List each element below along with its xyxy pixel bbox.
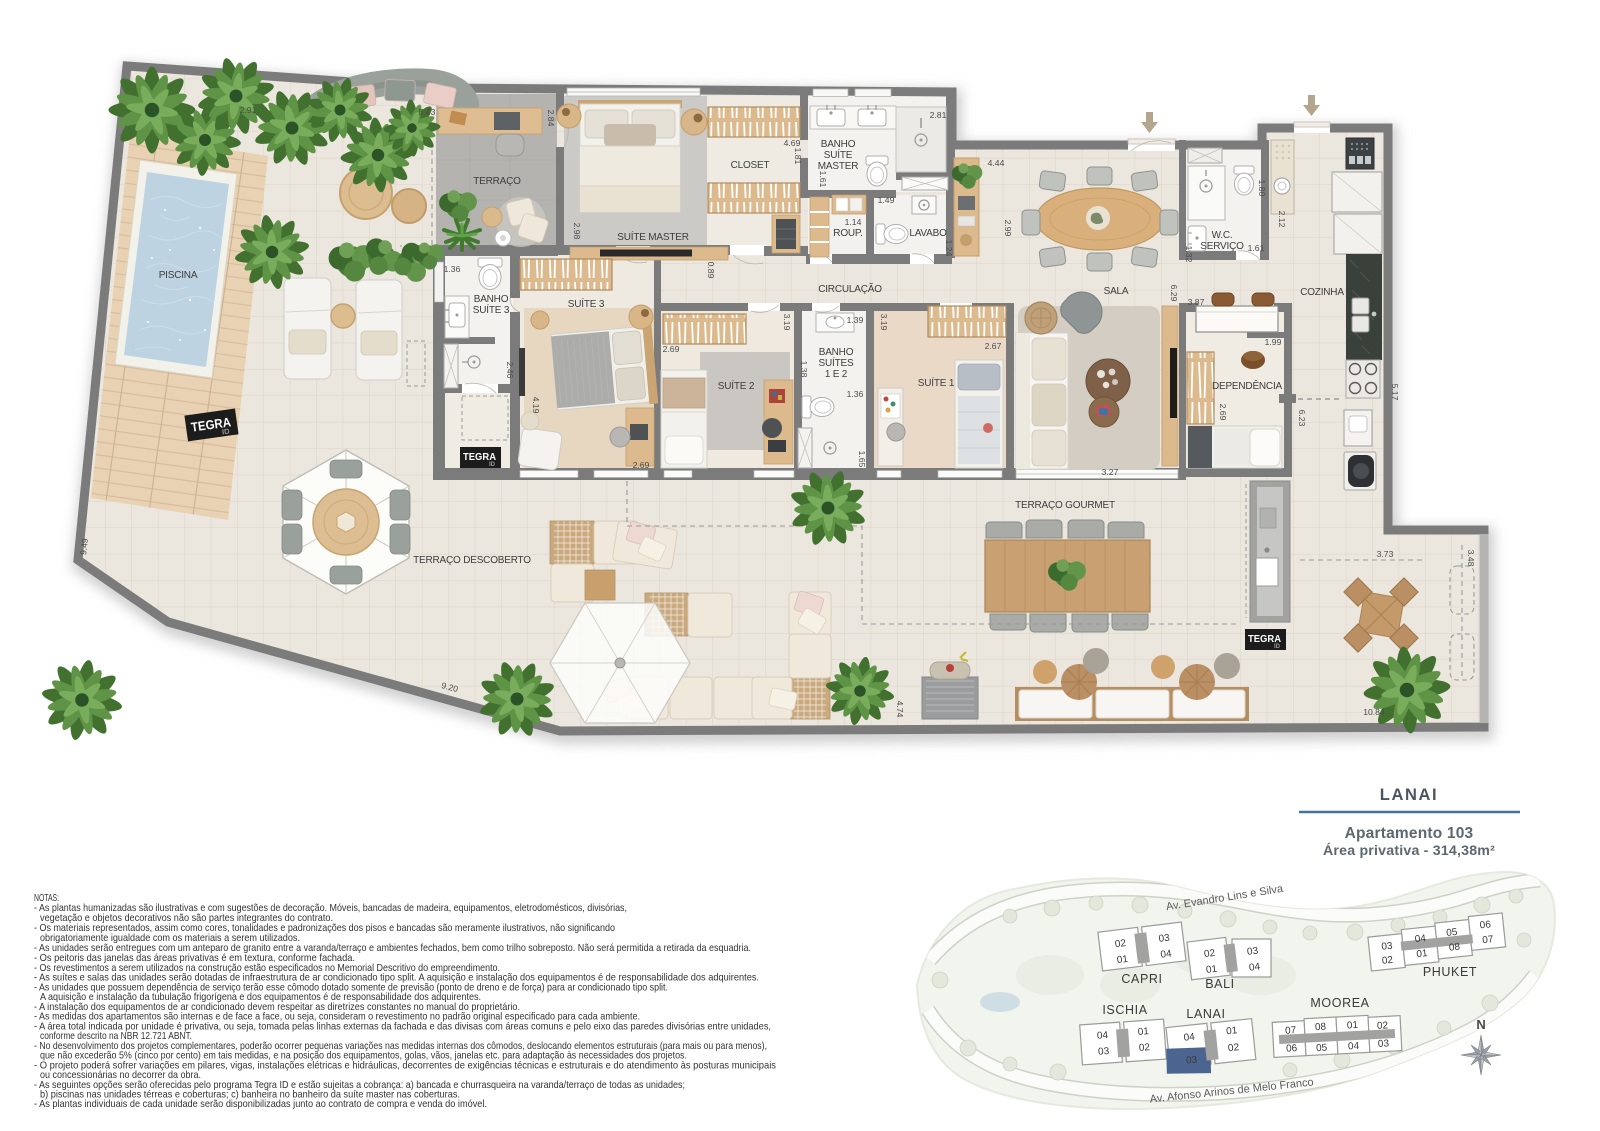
svg-text:01: 01 (1347, 1020, 1359, 1032)
svg-text:DEPENDÊNCIA: DEPENDÊNCIA (1212, 379, 1283, 392)
svg-text:1.61: 1.61 (818, 171, 828, 188)
svg-text:1.99: 1.99 (1265, 337, 1282, 347)
svg-text:2.69: 2.69 (663, 344, 680, 354)
svg-text:03: 03 (1246, 946, 1259, 958)
svg-text:1.65: 1.65 (857, 451, 867, 468)
svg-text:2.46: 2.46 (505, 362, 515, 379)
svg-text:LAVABO: LAVABO (909, 228, 947, 239)
svg-text:07: 07 (1482, 934, 1495, 946)
svg-text:4.69: 4.69 (784, 138, 801, 148)
svg-text:02: 02 (1377, 1020, 1389, 1032)
svg-text:3.73: 3.73 (1377, 549, 1394, 559)
svg-text:3.27: 3.27 (1102, 467, 1119, 477)
svg-text:2.12: 2.12 (1277, 211, 1287, 228)
svg-text:02: 02 (1114, 938, 1127, 950)
svg-text:01: 01 (1416, 948, 1429, 960)
svg-text:LANAI: LANAI (1186, 1007, 1225, 1021)
svg-text:05: 05 (1316, 1043, 1328, 1055)
svg-text:1.14: 1.14 (845, 217, 862, 227)
svg-text:2.69: 2.69 (1218, 404, 1228, 421)
svg-text:03: 03 (1381, 941, 1394, 953)
svg-text:4.19: 4.19 (531, 397, 541, 414)
svg-text:5.17: 5.17 (1390, 384, 1400, 401)
svg-text:4.44: 4.44 (988, 158, 1005, 168)
svg-text:SUÍTE: SUÍTE (824, 148, 853, 161)
svg-text:1.39: 1.39 (847, 315, 864, 325)
svg-text:3.87: 3.87 (1188, 297, 1205, 307)
svg-text:- As plantas individuais de ca: - As plantas individuais de cada unidade… (34, 1099, 487, 1110)
svg-text:1.49: 1.49 (878, 195, 895, 205)
svg-text:1 E 2: 1 E 2 (825, 369, 848, 380)
svg-text:10.84: 10.84 (1363, 707, 1385, 717)
svg-text:2.91: 2.91 (240, 105, 257, 115)
svg-text:1.36: 1.36 (847, 389, 864, 399)
svg-text:Apartamento 103: Apartamento 103 (1345, 825, 1474, 842)
svg-text:2.84: 2.84 (546, 110, 556, 127)
svg-text:2.98: 2.98 (572, 223, 582, 240)
svg-text:03: 03 (1378, 1038, 1390, 1050)
svg-text:1.61: 1.61 (1248, 243, 1265, 253)
svg-text:6.29: 6.29 (1169, 285, 1179, 302)
svg-text:03: 03 (1158, 933, 1171, 945)
svg-text:SUÍTE 1: SUÍTE 1 (918, 376, 955, 389)
svg-text:6.23: 6.23 (1297, 410, 1307, 427)
svg-text:02: 02 (1203, 948, 1216, 960)
svg-text:CIRCULAÇÃO: CIRCULAÇÃO (818, 282, 882, 295)
svg-text:04: 04 (1183, 1032, 1196, 1044)
svg-text:04: 04 (1160, 948, 1173, 960)
svg-text:2.69: 2.69 (633, 460, 650, 470)
svg-text:04: 04 (1414, 933, 1427, 945)
svg-text:06: 06 (1286, 1043, 1298, 1055)
svg-text:4.74: 4.74 (895, 701, 905, 718)
svg-text:TERRAÇO: TERRAÇO (473, 176, 521, 187)
svg-text:08: 08 (1448, 942, 1461, 954)
svg-text:01: 01 (1137, 1026, 1149, 1038)
svg-text:1.38: 1.38 (799, 361, 809, 378)
svg-text:2.99: 2.99 (1003, 220, 1013, 237)
svg-text:04: 04 (1348, 1041, 1360, 1053)
svg-text:03: 03 (1186, 1055, 1199, 1067)
svg-text:02: 02 (1227, 1042, 1240, 1054)
svg-text:07: 07 (1285, 1025, 1297, 1037)
svg-text:9.49: 9.49 (78, 538, 90, 556)
svg-text:SALA: SALA (1104, 286, 1129, 297)
svg-text:CLOSET: CLOSET (731, 160, 770, 171)
svg-text:04: 04 (1097, 1030, 1109, 1042)
svg-text:04: 04 (1248, 961, 1261, 973)
svg-text:0.89: 0.89 (706, 262, 716, 279)
svg-text:PHUKET: PHUKET (1423, 965, 1477, 979)
svg-text:1.32: 1.32 (1184, 246, 1194, 263)
svg-text:08: 08 (1315, 1022, 1327, 1034)
svg-text:SUÍTE 3: SUÍTE 3 (568, 297, 605, 310)
svg-text:1.24: 1.24 (944, 240, 954, 257)
svg-text:BALI: BALI (1205, 977, 1235, 991)
svg-text:ID: ID (489, 462, 496, 468)
svg-text:BANHO: BANHO (821, 139, 856, 150)
svg-text:LANAI: LANAI (1380, 786, 1438, 804)
svg-text:3.19: 3.19 (879, 314, 889, 331)
svg-text:COZINHA: COZINHA (1300, 287, 1344, 298)
svg-text:TERRAÇO GOURMET: TERRAÇO GOURMET (1015, 500, 1115, 511)
svg-text:2.81: 2.81 (930, 110, 947, 120)
svg-text:2.67: 2.67 (985, 341, 1002, 351)
svg-text:PISCINA: PISCINA (159, 270, 198, 281)
svg-text:3.19: 3.19 (782, 314, 792, 331)
svg-text:ID: ID (1274, 644, 1281, 650)
svg-text:ROUP.: ROUP. (833, 228, 862, 239)
svg-text:1.80: 1.80 (1257, 180, 1267, 197)
svg-text:SERVIÇO: SERVIÇO (1200, 241, 1244, 252)
svg-text:01: 01 (1226, 1025, 1239, 1037)
svg-text:SUÍTE 2: SUÍTE 2 (718, 379, 755, 392)
svg-text:SUÍTE MASTER: SUÍTE MASTER (617, 230, 689, 243)
svg-text:W.C.: W.C. (1212, 230, 1233, 241)
svg-text:SUÍTE 3: SUÍTE 3 (473, 303, 510, 316)
svg-text:03: 03 (1098, 1046, 1110, 1058)
svg-text:3.48: 3.48 (1466, 550, 1476, 567)
svg-text:01: 01 (1205, 964, 1218, 976)
svg-text:5.43: 5.43 (419, 107, 436, 117)
svg-text:05: 05 (1446, 927, 1459, 939)
svg-text:Área privativa - 314,38m²: Área privativa - 314,38m² (1323, 842, 1495, 858)
svg-text:ISCHIA: ISCHIA (1102, 1003, 1147, 1017)
svg-text:02: 02 (1139, 1042, 1151, 1054)
svg-text:CAPRI: CAPRI (1121, 972, 1162, 986)
svg-text:06: 06 (1479, 919, 1492, 931)
svg-text:1.81: 1.81 (793, 148, 803, 165)
svg-text:BANHO: BANHO (474, 294, 509, 305)
svg-text:SUÍTES: SUÍTES (819, 356, 854, 369)
svg-text:MOOREA: MOOREA (1310, 996, 1369, 1010)
svg-text:N: N (1476, 1017, 1485, 1032)
svg-text:01: 01 (1116, 954, 1129, 966)
svg-text:1.36: 1.36 (444, 264, 461, 274)
svg-text:TERRAÇO DESCOBERTO: TERRAÇO DESCOBERTO (413, 555, 531, 566)
svg-text:BANHO: BANHO (819, 347, 854, 358)
svg-text:02: 02 (1381, 955, 1394, 967)
